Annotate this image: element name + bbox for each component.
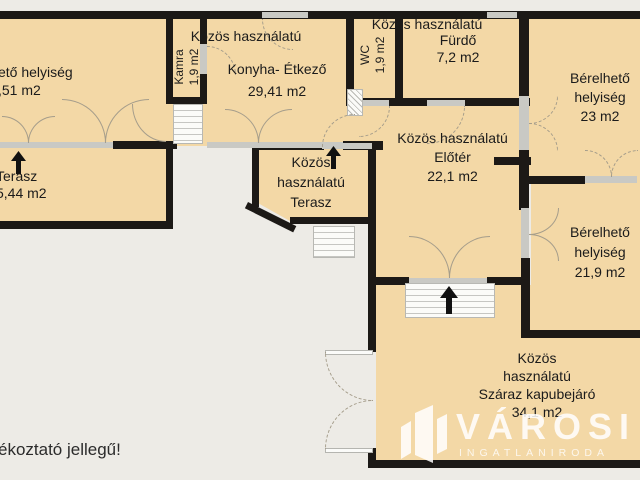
room-label-terrace-center: Közös használatú Terasz [258,152,364,212]
watermark-subtitle: INGATLANIRODA [459,447,609,459]
wall-segment [290,217,376,224]
room-label-line: Bérelhető [540,69,640,88]
watermark-brand: VÁROSI [456,406,636,448]
room-label-terrace-left: Terasz 5,44 m2 [0,168,76,202]
disclaimer-text: ékoztató jellegű! [0,440,121,460]
room-label-rentable-right: Bérelhető helyiség 21,9 m2 [542,222,640,282]
room-label-line: ető helyiség [0,63,128,81]
room-label-line: Terasz [0,168,76,185]
room-label-bathroom: Fürdő 7,2 m2 [393,32,523,66]
door-sill [585,176,637,183]
entrance-arrow-icon [440,286,458,314]
room-label-line: Közös [258,152,364,172]
room-label-kitchen: Konyha- Étkező 29,41 m2 [207,58,347,102]
floor-plan: ető helyiség ,51 m2 Kamra 1,9 m2 Közös h… [0,0,640,480]
door-arc [325,352,373,401]
stairs [173,104,203,144]
room-label-line: Előtér [365,148,540,167]
wall-segment [368,277,409,285]
room-label-line: Konyha- Étkező [207,58,347,80]
room-label-line: 5,44 m2 [0,185,76,202]
wall-segment [0,221,173,229]
room-label-line: 21,9 m2 [542,262,640,282]
stairs [313,226,355,258]
room-label-kitchen-title: Közös használatú [176,27,316,45]
varosi-logo-icon [401,401,451,463]
room-label-hall: Közös használatú Előtér 22,1 m2 [365,129,540,186]
room-label-line: ,51 m2 [0,81,128,99]
wall-segment [521,330,640,338]
room-label-line: használatú [258,172,364,192]
room-label-line: Bérelhető [542,222,640,242]
room-label-line: helyiség [540,88,640,107]
window [262,12,308,18]
room-label-line: Közös használatú [352,15,502,33]
room-label-line: használatú [417,367,640,385]
room-label-line: Terasz [258,192,364,212]
room-label-line: Fürdő [393,32,523,49]
room-label-line: 23 m2 [540,107,640,126]
room-label-line: 29,41 m2 [207,80,347,102]
wall-segment [521,258,530,338]
room-label-line: helyiség [542,242,640,262]
room-label-left-room: ető helyiség ,51 m2 [0,63,128,100]
room-label-line: 7,2 m2 [393,49,523,66]
wall-segment [166,147,173,228]
door-sill [521,208,529,258]
room-label-line: Közös [417,349,640,367]
door-arc [325,400,373,449]
room-label-line: 22,1 m2 [365,167,540,186]
room-label-line: Közös használatú [176,27,316,45]
room-label-bathroom-title: Közös használatú [352,15,502,33]
wall-segment [0,11,640,19]
room-label-line: Közös használatú [365,129,540,148]
room-label-rentable-top: Bérelhető helyiség 23 m2 [540,69,640,126]
